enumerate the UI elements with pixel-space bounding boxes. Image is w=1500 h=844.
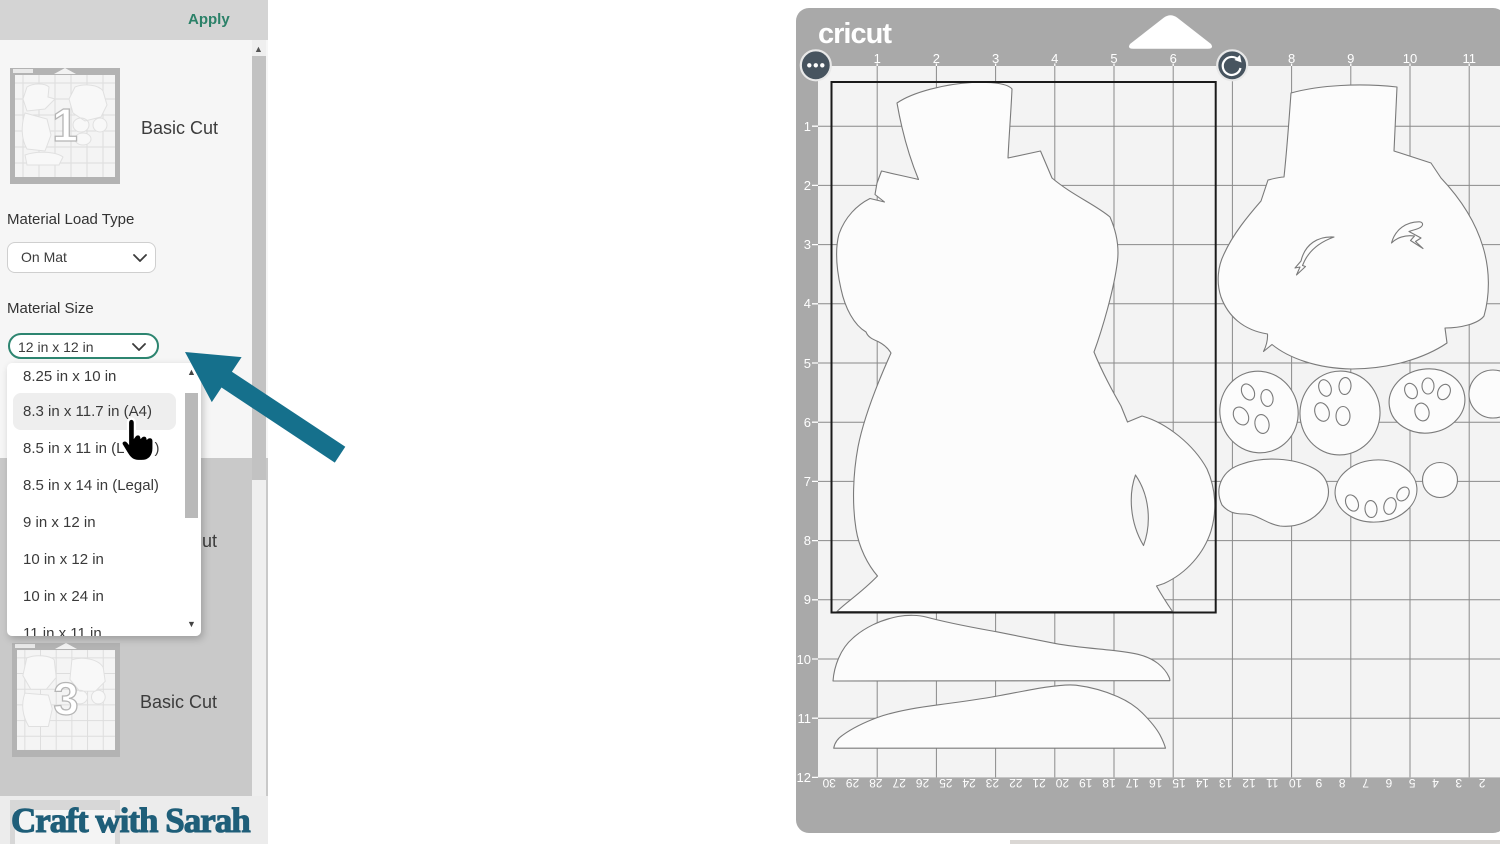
svg-text:5: 5 <box>804 356 811 371</box>
svg-text:8: 8 <box>804 533 811 548</box>
svg-text:29: 29 <box>846 776 860 790</box>
svg-text:3: 3 <box>804 237 811 252</box>
svg-text:7: 7 <box>804 474 811 489</box>
svg-text:8: 8 <box>1339 776 1346 790</box>
svg-text:11: 11 <box>1462 51 1476 66</box>
svg-text:4: 4 <box>1432 776 1439 790</box>
svg-text:16: 16 <box>1149 776 1163 790</box>
svg-text:20: 20 <box>1055 776 1069 790</box>
svg-text:10: 10 <box>1403 51 1417 66</box>
svg-text:9: 9 <box>1315 776 1322 790</box>
svg-text:3: 3 <box>992 51 999 66</box>
svg-text:18: 18 <box>1102 776 1116 790</box>
svg-text:24: 24 <box>962 776 976 790</box>
svg-text:10: 10 <box>797 652 811 667</box>
svg-text:17: 17 <box>1125 776 1139 790</box>
svg-text:9: 9 <box>804 592 811 607</box>
svg-text:26: 26 <box>916 776 930 790</box>
svg-text:6: 6 <box>1170 51 1177 66</box>
svg-text:25: 25 <box>939 776 953 790</box>
svg-text:2: 2 <box>1479 776 1486 790</box>
svg-text:23: 23 <box>985 776 999 790</box>
svg-text:9: 9 <box>1347 51 1354 66</box>
svg-text:30: 30 <box>822 776 836 790</box>
svg-text:2: 2 <box>804 178 811 193</box>
svg-text:11: 11 <box>798 711 812 726</box>
svg-text:27: 27 <box>892 776 906 790</box>
svg-text:22: 22 <box>1009 776 1023 790</box>
svg-text:4: 4 <box>804 296 811 311</box>
svg-text:1: 1 <box>804 119 811 134</box>
svg-text:1: 1 <box>52 99 78 151</box>
svg-text:1: 1 <box>874 51 881 66</box>
svg-text:10: 10 <box>1289 776 1303 790</box>
svg-text:19: 19 <box>1079 776 1093 790</box>
svg-text:cricut: cricut <box>818 18 892 50</box>
svg-text:6: 6 <box>804 415 811 430</box>
svg-text:8: 8 <box>1288 51 1295 66</box>
svg-text:3: 3 <box>53 674 78 725</box>
svg-text:4: 4 <box>1051 51 1058 66</box>
svg-text:6: 6 <box>1385 776 1392 790</box>
svg-text:5: 5 <box>1409 776 1416 790</box>
svg-text:28: 28 <box>869 776 883 790</box>
svg-text:13: 13 <box>1219 776 1233 790</box>
svg-text:2: 2 <box>933 51 940 66</box>
svg-text:14: 14 <box>1195 776 1209 790</box>
svg-text:21: 21 <box>1032 776 1046 790</box>
svg-text:12: 12 <box>797 770 811 785</box>
svg-text:12: 12 <box>1242 776 1256 790</box>
svg-text:15: 15 <box>1172 776 1186 790</box>
svg-text:11: 11 <box>1266 776 1279 790</box>
svg-text:7: 7 <box>1362 776 1369 790</box>
svg-text:5: 5 <box>1110 51 1117 66</box>
svg-text:3: 3 <box>1455 776 1462 790</box>
